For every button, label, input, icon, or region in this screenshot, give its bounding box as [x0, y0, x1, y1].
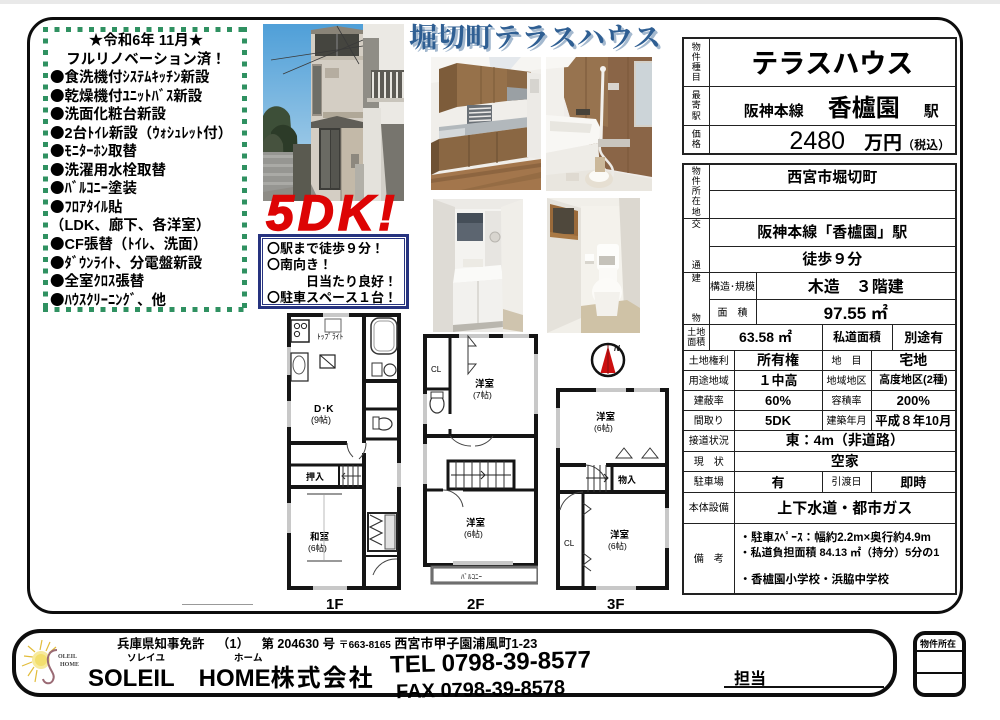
svg-text:(6帖): (6帖)	[608, 540, 627, 552]
svg-text:洋室: 洋室	[610, 527, 629, 541]
svg-text:HOME: HOME	[60, 662, 79, 668]
svg-text:CL: CL	[564, 538, 575, 549]
svg-text:(9帖): (9帖)	[311, 413, 331, 426]
svg-text:和室: 和室	[310, 529, 329, 543]
svg-text:ﾊﾞﾙｺﾆｰ: ﾊﾞﾙｺﾆｰ	[461, 572, 482, 582]
svg-text:(7帖): (7帖)	[473, 389, 492, 401]
svg-text:CL: CL	[431, 364, 442, 375]
svg-text:OLEIL: OLEIL	[58, 654, 77, 660]
svg-text:押入: 押入	[306, 470, 324, 483]
svg-text:N: N	[614, 343, 620, 354]
svg-text:洋室: 洋室	[466, 515, 485, 529]
svg-text:ﾄｯﾌﾟﾗｲﾄ: ﾄｯﾌﾟﾗｲﾄ	[317, 331, 343, 342]
svg-text:洋室: 洋室	[596, 409, 615, 423]
svg-text:物入: 物入	[618, 473, 636, 486]
svg-text:(6帖): (6帖)	[464, 528, 483, 540]
svg-text:洋室: 洋室	[475, 376, 494, 390]
svg-text:(6帖): (6帖)	[594, 422, 613, 434]
